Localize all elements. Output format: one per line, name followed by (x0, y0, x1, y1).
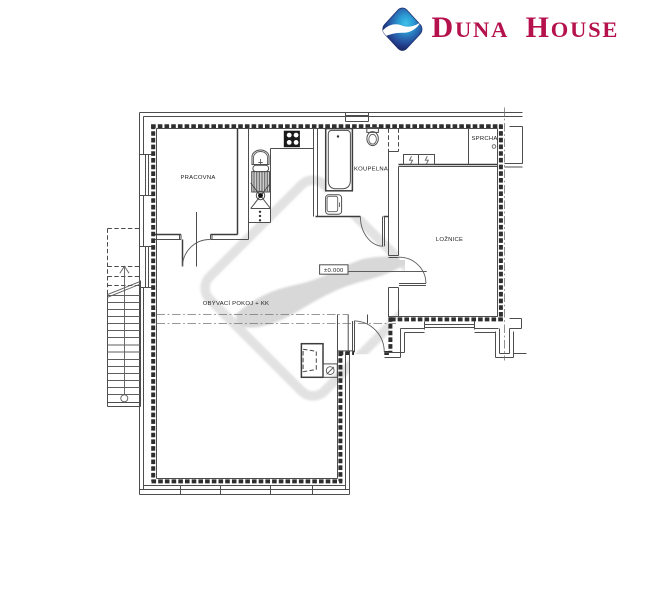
svg-text:PRACOVNA: PRACOVNA (180, 175, 215, 181)
svg-text:SPRCHA: SPRCHA (471, 136, 497, 142)
svg-text:KOUPELNA: KOUPELNA (354, 167, 388, 173)
svg-text:LOŽNICE: LOŽNICE (436, 235, 463, 243)
svg-text:±0.000: ±0.000 (324, 268, 344, 274)
svg-text:OBÝVACÍ POKOJ + KK: OBÝVACÍ POKOJ + KK (203, 300, 269, 307)
svg-text:DUNAHOUSE: DUNAHOUSE (432, 11, 620, 44)
